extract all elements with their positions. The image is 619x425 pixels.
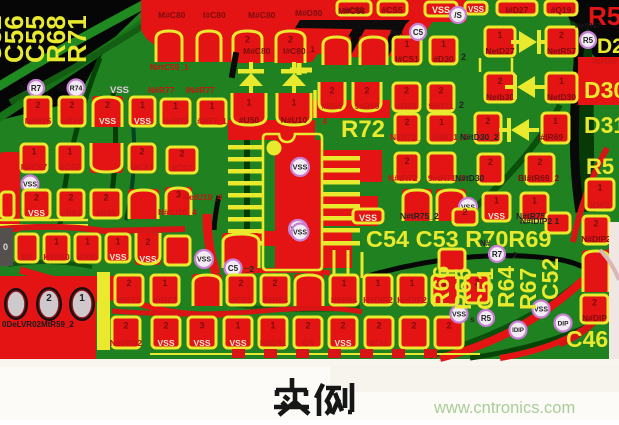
svg-text:2: 2	[446, 321, 451, 331]
svg-text:2: 2	[179, 149, 184, 159]
svg-text:2: 2	[404, 85, 409, 95]
svg-text:1: 1	[497, 30, 502, 40]
svg-text:N#tC59_1: N#tC59_1	[150, 62, 189, 72]
svg-text:2: 2	[272, 278, 277, 288]
svg-text:C46: C46	[566, 326, 608, 352]
svg-text:N#: N#	[480, 239, 491, 248]
svg-text:IDIP: IDIP	[512, 328, 524, 334]
svg-text:2: 2	[485, 116, 490, 126]
svg-text:I#IR69: I#IR69	[538, 132, 563, 142]
svg-text:N#tR72_: N#tR72_	[388, 173, 422, 183]
svg-text:2: 2	[288, 35, 293, 45]
svg-text:1: 1	[409, 278, 414, 288]
svg-text:1: 1	[597, 183, 602, 193]
svg-text:1: 1	[439, 117, 444, 127]
svg-text:I#C80: I#C80	[283, 46, 306, 56]
svg-text:2: 2	[559, 30, 564, 40]
svg-text:I#C57: I#C57	[131, 162, 154, 172]
svg-text:1: 1	[209, 101, 214, 111]
svg-text:IN#DIP: IN#DIP	[592, 57, 618, 66]
svg-text:C5: C5	[303, 338, 314, 348]
svg-text:1: 1	[341, 278, 346, 288]
svg-text:N#R77: N#R77	[162, 116, 189, 126]
svg-text:N#IDIP2 1: N#IDIP2 1	[520, 216, 559, 226]
svg-text:1: 1	[162, 278, 167, 288]
svg-text:M#D80: M#D80	[295, 8, 323, 18]
svg-text:N#tR75_2: N#tR75_2	[400, 211, 439, 221]
svg-text:Netb30: Netb30	[486, 92, 515, 102]
svg-text:2: 2	[238, 278, 243, 288]
svg-text:#R77_1: #R77_1	[197, 116, 227, 126]
svg-text:B0: B0	[22, 252, 33, 262]
svg-text:R74: R74	[70, 86, 83, 93]
svg-text:VSS: VSS	[193, 338, 210, 348]
svg-text:s: s	[470, 315, 475, 324]
svg-text:2: 2	[459, 100, 464, 110]
svg-text:IC31: IC31	[370, 338, 388, 348]
svg-text:1: 1	[67, 146, 72, 156]
svg-text:2: 2	[376, 321, 381, 331]
svg-text:VSS: VSS	[99, 116, 116, 126]
svg-text:VSS: VSS	[23, 182, 37, 189]
svg-text:M#C56: M#C56	[338, 6, 366, 16]
svg-text:R5: R5	[481, 314, 492, 323]
svg-text:R5: R5	[583, 36, 594, 45]
svg-text:1: 1	[494, 195, 499, 205]
svg-text:I#C80: I#C80	[203, 10, 226, 20]
svg-text:3: 3	[199, 321, 204, 331]
svg-text:C5: C5	[413, 28, 424, 37]
svg-text:VSS: VSS	[293, 230, 307, 237]
svg-text:N#DIP2: N#DIP2	[581, 234, 611, 244]
svg-text:C40: C40	[0, 107, 5, 142]
svg-text:NetD27: NetD27	[485, 46, 515, 56]
svg-text:#R68: #R68	[396, 101, 417, 111]
svg-text:#tR62: #tR62	[153, 295, 176, 305]
svg-text:1: 1	[559, 76, 564, 86]
svg-text:N#R72_: N#R72_	[390, 132, 421, 142]
svg-text:2: 2	[461, 52, 466, 62]
svg-text:#Q19: #Q19	[551, 5, 572, 15]
svg-text:1: 1	[31, 146, 36, 156]
svg-text:#R66: #R66	[322, 101, 343, 111]
svg-text:NeVR02: NeVR02	[110, 338, 142, 348]
svg-text:#R81: #R81	[61, 208, 82, 218]
svg-text:2: 2	[305, 321, 310, 331]
svg-text:NetD30: NetD30	[547, 92, 577, 102]
svg-text:N#C57: N#C57	[21, 162, 48, 172]
svg-text:2: 2	[488, 157, 493, 167]
svg-text:1: 1	[441, 39, 446, 49]
svg-text:IDP2: IDP2	[591, 200, 610, 210]
svg-text:1: 1	[291, 98, 296, 108]
svg-text:VSS: VSS	[452, 312, 466, 319]
svg-text:1: 1	[246, 98, 251, 108]
svg-text:VSS: VSS	[139, 254, 156, 264]
svg-text:VSS: VSS	[28, 208, 45, 218]
svg-text:N#tD30_2: N#tD30_2	[460, 132, 499, 142]
svg-text:0DeLVR02MtR59_2: 0DeLVR02MtR59_2	[2, 320, 74, 329]
svg-text:R72: R72	[341, 116, 385, 143]
svg-text:C52: C52	[537, 258, 563, 300]
svg-text:VSS: VSS	[229, 338, 246, 348]
svg-text:M#C80: M#C80	[248, 10, 276, 20]
svg-text:N#tU10_4: N#tU10_4	[158, 207, 197, 217]
svg-text:VSS: VSS	[488, 211, 505, 221]
svg-text:Bl#tR69_2: Bl#tR69_2	[518, 173, 559, 183]
svg-text:1: 1	[235, 321, 240, 331]
svg-text:H#R60: H#R60	[43, 252, 70, 262]
svg-text:C5: C5	[228, 264, 239, 273]
svg-text:VSS: VSS	[109, 252, 126, 262]
svg-text:R71: R71	[62, 15, 92, 63]
svg-text:#U50: #U50	[239, 115, 260, 125]
svg-text:2: 2	[103, 192, 108, 202]
svg-text:2: 2	[537, 157, 542, 167]
svg-text:N#tD30: N#tD30	[455, 173, 485, 183]
svg-text:1: 1	[270, 321, 275, 331]
svg-text:2: 2	[411, 321, 416, 331]
svg-text:2: 2	[35, 100, 40, 110]
svg-text:2: 2	[438, 85, 443, 95]
svg-text:0: 0	[3, 242, 8, 252]
svg-text:2: 2	[34, 192, 39, 202]
svg-text:D31: D31	[584, 112, 619, 138]
svg-text:VSS: VSS	[197, 257, 211, 264]
svg-text:VSS: VSS	[134, 116, 151, 126]
svg-text:VSS: VSS	[292, 163, 307, 172]
svg-text:S#R64: S#R64	[262, 295, 288, 305]
svg-text:#C57: #C57	[172, 163, 193, 173]
svg-text:2: 2	[69, 100, 74, 110]
svg-text:www.cntronics.com: www.cntronics.com	[433, 399, 575, 417]
svg-text:2: 2	[123, 321, 128, 331]
svg-text:1: 1	[115, 236, 120, 246]
svg-text:NetU10_4: NetU10_4	[183, 192, 222, 202]
svg-text:I#D27: I#D27	[506, 5, 529, 15]
svg-text:N#DIP: N#DIP	[582, 313, 607, 323]
svg-text:D30: D30	[584, 77, 619, 103]
svg-text:R7: R7	[492, 250, 503, 259]
svg-text:H#DIP2: H#DIP2	[397, 295, 427, 305]
svg-text:2: 2	[497, 76, 502, 86]
svg-text:IN#R77: IN#R77	[186, 85, 215, 95]
svg-text:2: 2	[329, 85, 334, 95]
svg-text:2: 2	[593, 218, 598, 228]
svg-text:VSS: VSS	[157, 338, 174, 348]
svg-text:R5: R5	[586, 154, 614, 179]
svg-text:1: 1	[532, 195, 537, 205]
svg-text:N: N	[20, 84, 26, 93]
svg-text:2: 2	[163, 321, 168, 331]
svg-text:2: 2	[340, 321, 345, 331]
svg-text:#C51: #C51	[231, 295, 252, 305]
svg-text:Net: Net	[390, 28, 403, 37]
svg-text:2: 2	[404, 156, 409, 166]
svg-text:2: 2	[404, 117, 409, 127]
svg-text:2: 2	[46, 293, 52, 304]
svg-text:2: 2	[245, 35, 250, 45]
svg-text:1: 1	[54, 236, 59, 246]
svg-text:2: 2	[462, 207, 467, 217]
svg-text:M#C80: M#C80	[158, 10, 186, 20]
svg-text:2: 2	[126, 278, 131, 288]
svg-text:VSS: VSS	[359, 213, 377, 223]
svg-text:2: 2	[145, 237, 150, 247]
svg-text:9#R69: 9#R69	[354, 101, 379, 111]
svg-text:_2: _2	[244, 265, 254, 274]
svg-text:#tR62: #tR62	[117, 295, 140, 305]
svg-text:_4: _4	[317, 117, 327, 126]
svg-text:H#DIP2: H#DIP2	[363, 295, 393, 305]
svg-text:1: 1	[140, 100, 145, 110]
svg-text:NetR57: NetR57	[575, 21, 601, 30]
svg-text:#CS5: #CS5	[381, 5, 403, 15]
svg-text:1: 1	[79, 293, 85, 304]
svg-text:1: 1	[404, 39, 409, 49]
svg-text:1: 1	[553, 116, 558, 126]
svg-text:N#R77: N#R77	[148, 85, 175, 95]
svg-text:#C57: #C57	[60, 162, 81, 172]
svg-text:N#R75: N#R75	[25, 116, 52, 126]
svg-text:I#CS1: I#CS1	[395, 54, 419, 64]
svg-text:2: 2	[105, 100, 110, 110]
svg-text:M#C80: M#C80	[243, 46, 271, 56]
svg-text:#R90: #R90	[77, 252, 98, 262]
svg-text:#D30: #D30	[433, 54, 454, 64]
svg-text:VSS: VSS	[110, 85, 129, 96]
svg-text:2: 2	[364, 85, 369, 95]
svg-text:2: 2	[68, 192, 73, 202]
svg-text:H#R64: H#R64	[331, 295, 358, 305]
svg-text:1: 1	[375, 278, 380, 288]
svg-text:NetR57: NetR57	[547, 46, 577, 56]
svg-text:VSS: VSS	[468, 5, 485, 14]
svg-text:N#U10: N#U10	[281, 115, 308, 125]
svg-text:_2: _2	[507, 251, 517, 260]
svg-text:VSS: VSS	[432, 5, 450, 15]
svg-text:1: 1	[173, 101, 178, 111]
svg-text:9#R71: 9#R71	[428, 101, 453, 111]
svg-text:2: 2	[592, 297, 597, 307]
svg-text:#R74: #R74	[62, 116, 83, 126]
svg-text:2: 2	[139, 146, 144, 156]
svg-text:VSS: VSS	[334, 338, 351, 348]
svg-text:N#C51: N#C51	[260, 338, 287, 348]
svg-text:D2: D2	[597, 35, 619, 58]
svg-text:R7: R7	[31, 84, 42, 93]
svg-text:1: 1	[85, 236, 90, 246]
svg-text:3: 3	[176, 190, 181, 200]
svg-text:N: N	[58, 84, 64, 93]
svg-text:/S: /S	[454, 11, 462, 20]
svg-text:#R81: #R81	[96, 208, 117, 218]
